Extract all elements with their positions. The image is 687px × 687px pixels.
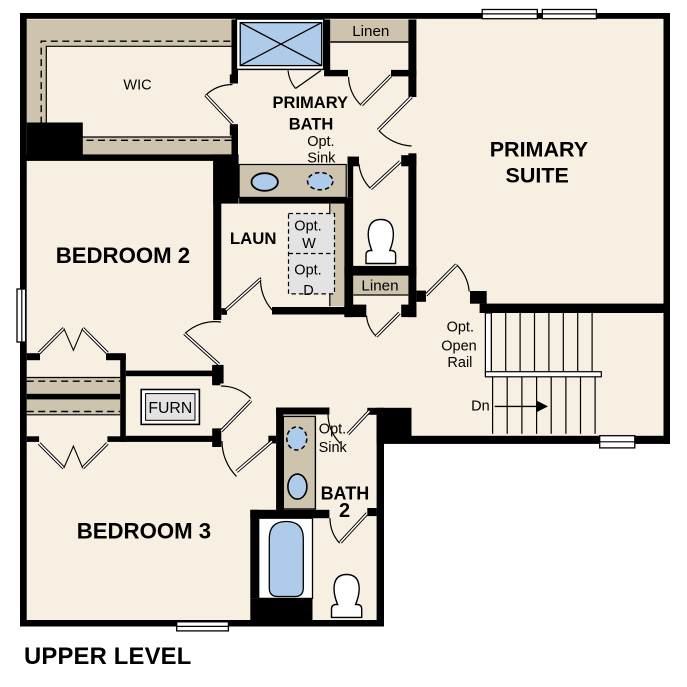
svg-text:2: 2 <box>339 500 350 522</box>
svg-text:Sink: Sink <box>319 440 348 456</box>
svg-text:SUITE: SUITE <box>506 163 569 187</box>
svg-text:WIC: WIC <box>123 78 151 94</box>
svg-text:Sink: Sink <box>307 151 336 167</box>
svg-text:BATH: BATH <box>289 116 334 134</box>
svg-text:Opt.: Opt. <box>294 219 321 235</box>
svg-text:PRIMARY: PRIMARY <box>273 94 348 112</box>
svg-text:Opt.: Opt. <box>447 320 474 336</box>
svg-text:Opt.: Opt. <box>294 263 321 279</box>
svg-text:D: D <box>303 283 313 299</box>
svg-text:BEDROOM 3: BEDROOM 3 <box>77 518 211 543</box>
svg-text:Opt.: Opt. <box>319 422 346 438</box>
svg-text:UPPER LEVEL: UPPER LEVEL <box>24 643 192 670</box>
svg-text:Rail: Rail <box>447 355 472 371</box>
svg-text:Dn: Dn <box>471 398 490 414</box>
svg-text:FURN: FURN <box>148 400 192 417</box>
svg-text:W: W <box>302 236 316 252</box>
svg-text:LAUN: LAUN <box>230 229 277 248</box>
svg-text:Opt.: Opt. <box>307 134 334 150</box>
svg-text:Open: Open <box>441 338 476 354</box>
svg-text:Linen: Linen <box>361 277 398 294</box>
svg-text:Linen: Linen <box>352 23 389 40</box>
svg-text:PRIMARY: PRIMARY <box>490 137 588 161</box>
svg-text:BEDROOM 2: BEDROOM 2 <box>56 243 190 268</box>
